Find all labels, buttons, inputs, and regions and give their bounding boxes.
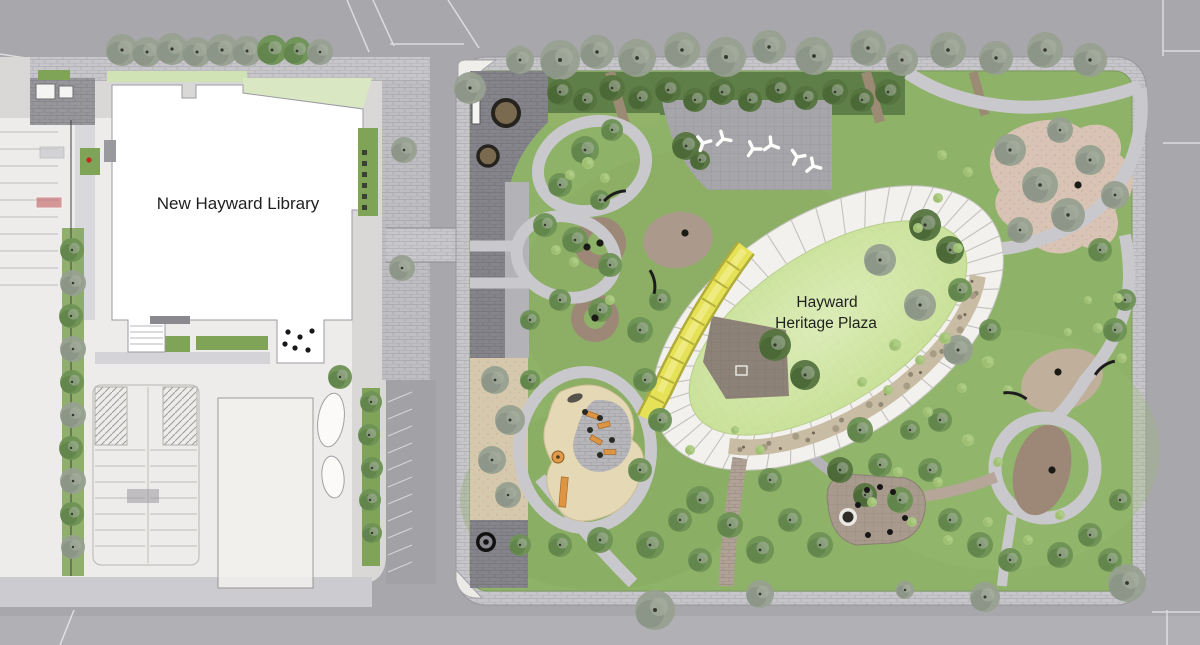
tree-canopy xyxy=(520,310,540,330)
canopy-light xyxy=(399,260,411,272)
trunk xyxy=(1119,499,1121,501)
canopy-light xyxy=(593,42,608,57)
trunk xyxy=(70,447,72,449)
tree-canopy xyxy=(686,486,714,514)
shrub xyxy=(1084,296,1092,304)
canopy-light xyxy=(1027,537,1032,542)
trunk xyxy=(918,303,921,306)
trunk xyxy=(949,249,952,252)
plaza-label-line1: Hayward xyxy=(796,294,857,311)
canopy-light xyxy=(555,247,560,252)
canopy-light xyxy=(597,532,609,544)
trunk xyxy=(71,249,73,251)
bush xyxy=(362,183,367,188)
canopy-light xyxy=(609,123,619,133)
shrub xyxy=(933,193,943,203)
canopy-light xyxy=(767,473,778,484)
canopy-light xyxy=(70,341,82,353)
trunk xyxy=(923,223,926,226)
canopy-light xyxy=(1112,323,1123,334)
tree-canopy xyxy=(1088,238,1112,262)
trunk xyxy=(639,469,641,471)
tree-canopy xyxy=(875,79,901,105)
shrub xyxy=(915,355,925,365)
canopy-light xyxy=(908,424,917,433)
tree-canopy xyxy=(648,408,672,432)
canopy-light xyxy=(68,441,79,452)
trunk xyxy=(777,89,780,92)
canopy-light xyxy=(1122,293,1132,303)
trunk xyxy=(1124,299,1126,301)
shrub xyxy=(957,383,967,393)
tree-canopy xyxy=(979,319,1001,341)
trunk xyxy=(834,91,837,94)
tree-canopy xyxy=(752,30,786,64)
shrub xyxy=(889,339,901,351)
bush xyxy=(362,161,367,166)
trunk xyxy=(769,479,771,481)
canopy-light xyxy=(665,82,677,94)
tree-canopy xyxy=(358,424,380,446)
tree-canopy xyxy=(635,590,675,630)
canopy-light xyxy=(1117,493,1127,503)
canopy-light xyxy=(1107,553,1118,564)
tree-canopy xyxy=(307,39,333,65)
tree-canopy xyxy=(59,304,83,328)
tree-canopy xyxy=(361,457,383,479)
shrub xyxy=(605,295,615,305)
canopy-light xyxy=(698,154,707,163)
trunk xyxy=(904,589,906,591)
trunk xyxy=(1114,329,1116,331)
canopy-light xyxy=(609,297,614,302)
seat-drum xyxy=(597,415,603,421)
trunk xyxy=(519,544,521,546)
tree-canopy xyxy=(520,370,540,390)
trunk xyxy=(170,47,173,50)
canopy-light xyxy=(1121,355,1126,360)
trunk xyxy=(929,469,931,471)
picnic-seat xyxy=(890,489,896,495)
trunk xyxy=(667,89,670,92)
trunk xyxy=(729,524,732,527)
trunk xyxy=(71,513,73,515)
trunk xyxy=(859,429,862,432)
tree-canopy xyxy=(389,255,415,281)
canopy-light xyxy=(801,366,815,380)
tree-canopy xyxy=(994,134,1026,166)
shrub xyxy=(907,517,917,527)
trunk xyxy=(635,56,639,60)
canopy-light xyxy=(937,195,942,200)
canopy-light xyxy=(1017,222,1029,234)
tree-canopy xyxy=(454,72,486,104)
canopy-light xyxy=(637,322,649,334)
shrub xyxy=(943,535,953,545)
trunk xyxy=(339,376,341,378)
canopy-light xyxy=(489,452,502,465)
seat-drum xyxy=(587,427,593,433)
shrub xyxy=(1093,323,1103,333)
tree-canopy xyxy=(778,508,802,532)
shrub xyxy=(939,332,951,344)
canopy-light xyxy=(734,428,738,432)
trunk xyxy=(1109,559,1111,561)
street-south-lane xyxy=(0,616,1200,645)
tree-canopy xyxy=(706,37,746,77)
canopy-light xyxy=(747,93,758,104)
canopy-light xyxy=(573,259,578,264)
canopy-light xyxy=(632,47,649,64)
canopy-light xyxy=(771,335,785,349)
canopy-light xyxy=(569,172,574,177)
canopy-light xyxy=(921,215,935,229)
plaza-label-line2: Heritage Plaza xyxy=(775,315,877,332)
hatched-zone xyxy=(95,387,127,445)
trunk xyxy=(529,379,531,381)
tree-canopy xyxy=(548,533,572,557)
trunk xyxy=(949,519,951,521)
canopy-light xyxy=(70,540,81,551)
boulder xyxy=(297,334,302,339)
specimen-tree-marker xyxy=(591,314,598,321)
canopy-light xyxy=(657,293,667,303)
trunk xyxy=(1089,159,1092,162)
tree-canopy xyxy=(1007,217,1033,243)
tree-canopy xyxy=(60,468,86,494)
tree-canopy xyxy=(850,30,886,66)
tree-canopy xyxy=(636,531,664,559)
tree-canopy xyxy=(359,489,381,511)
tree-canopy xyxy=(1109,489,1131,511)
tree-canopy xyxy=(587,527,613,553)
trunk xyxy=(721,91,724,94)
tree-canopy xyxy=(1051,198,1085,232)
canopy-light xyxy=(1087,298,1091,302)
trunk xyxy=(584,149,587,152)
tree-canopy xyxy=(540,40,580,80)
canopy-light xyxy=(1117,295,1122,300)
boulder xyxy=(282,341,287,346)
tree-canopy xyxy=(649,289,671,311)
canopy-light xyxy=(1086,50,1101,65)
canopy-light xyxy=(987,519,992,524)
canopy-light xyxy=(997,459,1002,464)
tree-canopy xyxy=(1022,167,1058,203)
parked-car-ghost xyxy=(127,489,159,503)
trunk xyxy=(401,267,404,270)
trunk xyxy=(866,46,870,50)
trunk xyxy=(1099,249,1101,251)
canopy-light xyxy=(1097,325,1102,330)
canopy-light xyxy=(683,138,696,151)
canopy-light xyxy=(803,91,814,102)
trunk xyxy=(371,532,373,534)
canopy-light xyxy=(877,458,888,469)
canopy-light xyxy=(68,309,79,320)
picnic-plaza-paving xyxy=(827,474,925,545)
tree-canopy xyxy=(257,35,287,65)
picnic-seat xyxy=(887,529,893,535)
trunk xyxy=(196,51,199,54)
tree-canopy xyxy=(930,32,966,68)
trunk xyxy=(979,544,982,547)
canopy-light xyxy=(572,232,584,244)
tree-canopy xyxy=(60,336,86,362)
tree-canopy xyxy=(628,86,652,110)
canopy-light xyxy=(957,245,962,250)
trunk xyxy=(1059,129,1062,132)
tree-canopy xyxy=(688,548,712,572)
canopy-light xyxy=(967,436,972,441)
canopy-light xyxy=(218,40,232,54)
boulder xyxy=(305,347,310,352)
trunk xyxy=(909,429,911,431)
trunk xyxy=(529,319,531,321)
tree-canopy xyxy=(601,119,623,141)
tree-canopy xyxy=(668,508,692,532)
trunk xyxy=(959,289,961,291)
canopy-light xyxy=(787,513,798,524)
shrub xyxy=(755,445,765,455)
trunk xyxy=(773,343,776,346)
tree-canopy xyxy=(1108,564,1146,602)
canopy-light xyxy=(70,473,82,485)
canopy-light xyxy=(506,411,520,425)
canopy-light xyxy=(697,492,710,505)
shrub xyxy=(600,173,610,183)
canopy-light xyxy=(657,413,668,424)
boulder xyxy=(285,329,290,334)
canopy-light xyxy=(1122,572,1139,589)
trunk xyxy=(296,50,299,53)
canopy-light xyxy=(557,293,567,303)
tree-canopy xyxy=(1075,145,1105,175)
trunk xyxy=(72,414,75,417)
trunk xyxy=(370,401,372,403)
trunk xyxy=(759,549,762,552)
trunk xyxy=(984,596,987,599)
canopy-light xyxy=(898,50,912,64)
trunk xyxy=(1043,48,1047,52)
tree-canopy xyxy=(1047,117,1073,143)
canopy-light xyxy=(697,553,708,564)
library-label: New Hayward Library xyxy=(157,194,320,213)
tree-canopy xyxy=(362,523,382,543)
trunk xyxy=(271,49,274,52)
shrub xyxy=(582,157,594,169)
shrub xyxy=(867,497,877,507)
trunk xyxy=(72,546,74,548)
canopy-light xyxy=(817,537,829,549)
bush xyxy=(362,150,367,155)
tree-canopy xyxy=(655,77,681,103)
shrub xyxy=(983,517,993,527)
shrub xyxy=(963,167,973,177)
trunk xyxy=(559,299,561,301)
fire-ring-inner xyxy=(843,512,854,523)
trunk xyxy=(494,379,497,382)
specimen-tree-marker xyxy=(596,239,603,246)
canopy-light xyxy=(528,314,537,323)
canopy-light xyxy=(604,175,609,180)
tree-canopy xyxy=(850,88,874,112)
canopy-light xyxy=(542,218,553,229)
tree-canopy xyxy=(283,37,311,65)
canopy-light xyxy=(168,39,182,53)
trunk xyxy=(1008,148,1011,151)
picnic-seat xyxy=(902,515,908,521)
tree-canopy xyxy=(599,75,625,101)
trunk xyxy=(72,282,75,285)
tree-canopy xyxy=(506,46,534,74)
trunk xyxy=(544,224,546,226)
canopy-light xyxy=(987,358,992,363)
trunk xyxy=(680,48,684,52)
tree-canopy xyxy=(627,317,653,343)
tree-canopy xyxy=(746,580,774,608)
canopy-light xyxy=(650,598,668,616)
canopy-light xyxy=(887,387,892,392)
canopy-light xyxy=(368,395,378,405)
trunk xyxy=(609,264,611,266)
trunk xyxy=(900,58,903,61)
canopy-light xyxy=(992,48,1007,63)
trunk xyxy=(369,499,371,501)
utility-box xyxy=(36,84,55,99)
canopy-light xyxy=(894,341,899,346)
canopy-light xyxy=(937,413,948,424)
canopy-light xyxy=(367,493,377,503)
shrub xyxy=(982,356,994,368)
nw-planting-strip xyxy=(38,70,70,80)
picnic-seat xyxy=(855,502,861,508)
trunk xyxy=(639,329,642,332)
shrub xyxy=(1055,510,1065,520)
tree-canopy xyxy=(573,88,597,112)
tree-canopy xyxy=(360,391,382,413)
site-plan: New Hayward Library Hayward Heritage Pla… xyxy=(0,0,1200,645)
canopy-light xyxy=(876,250,890,264)
tree-canopy xyxy=(628,458,652,482)
tree-canopy xyxy=(967,532,993,558)
trunk xyxy=(599,309,601,311)
tree-canopy xyxy=(868,453,892,477)
trunk xyxy=(812,54,816,58)
shrub xyxy=(923,407,933,417)
trunk xyxy=(749,99,751,101)
canopy-light xyxy=(582,142,595,155)
canopy-light xyxy=(987,323,997,333)
trunk xyxy=(994,56,997,59)
trunk xyxy=(72,480,75,483)
canopy-light xyxy=(637,463,648,474)
canopy-light xyxy=(1112,187,1125,200)
tree-canopy xyxy=(391,137,417,163)
canopy-light xyxy=(809,45,826,62)
play-mound-center xyxy=(556,455,560,459)
canopy-light xyxy=(727,517,739,529)
canopy-light xyxy=(917,225,922,230)
utility-box xyxy=(59,86,73,98)
canopy-light xyxy=(937,479,942,484)
tree-canopy xyxy=(909,209,941,241)
trunk xyxy=(861,99,863,101)
tree-canopy xyxy=(886,44,918,76)
trunk xyxy=(1009,559,1011,561)
trunk xyxy=(368,434,370,436)
bush xyxy=(362,172,367,177)
tree-canopy xyxy=(1103,318,1127,342)
tree-canopy xyxy=(864,244,896,276)
canopy-light xyxy=(243,42,257,56)
tree-canopy xyxy=(549,289,571,311)
trunk xyxy=(1038,183,1042,187)
specimen-tree-marker xyxy=(1048,466,1055,473)
trunk xyxy=(1089,534,1091,536)
tree-canopy xyxy=(60,370,84,394)
canopy-light xyxy=(70,275,82,287)
tree-canopy xyxy=(495,482,521,508)
tree-canopy xyxy=(533,213,557,237)
shrub xyxy=(937,150,947,160)
trunk xyxy=(584,99,586,101)
tree-canopy xyxy=(759,329,791,361)
canopy-light xyxy=(555,48,573,66)
canopy-light xyxy=(1087,528,1098,539)
shrub xyxy=(1117,353,1127,363)
canopy-light xyxy=(70,407,82,419)
trunk xyxy=(1059,554,1062,557)
trunk xyxy=(819,544,822,547)
specimen-tree-marker xyxy=(681,229,688,236)
canopy-light xyxy=(944,39,960,55)
parked-car-ghost xyxy=(40,147,64,158)
shrub xyxy=(1023,535,1033,545)
canopy-light xyxy=(765,37,780,52)
shrub xyxy=(933,477,943,487)
trunk xyxy=(804,374,807,377)
canopy-light xyxy=(947,537,952,542)
trunk xyxy=(509,419,512,422)
canopy-light xyxy=(757,542,770,555)
trunk xyxy=(694,99,696,101)
specimen-tree-marker xyxy=(1054,368,1061,375)
south-planting-strip xyxy=(196,336,268,350)
canopy-light xyxy=(118,40,132,54)
trunk xyxy=(220,48,223,51)
east-hedge-strip xyxy=(358,128,378,216)
tree-canopy xyxy=(60,402,86,428)
canopy-light xyxy=(967,169,972,174)
tree-canopy xyxy=(580,35,614,69)
trunk xyxy=(1114,194,1117,197)
picnic-seat xyxy=(864,487,870,493)
canopy-light xyxy=(143,43,157,57)
tree-canopy xyxy=(61,535,85,559)
tree-canopy xyxy=(664,32,700,68)
trunk xyxy=(864,494,866,496)
shrub xyxy=(565,170,575,180)
trunk xyxy=(507,494,510,497)
canopy-light xyxy=(492,372,505,385)
tree-canopy xyxy=(790,360,820,390)
canopy-light xyxy=(370,527,379,536)
trunk xyxy=(899,499,902,502)
tree-canopy xyxy=(746,536,774,564)
canopy-light xyxy=(1007,553,1018,564)
building-south-stoop xyxy=(150,316,190,324)
